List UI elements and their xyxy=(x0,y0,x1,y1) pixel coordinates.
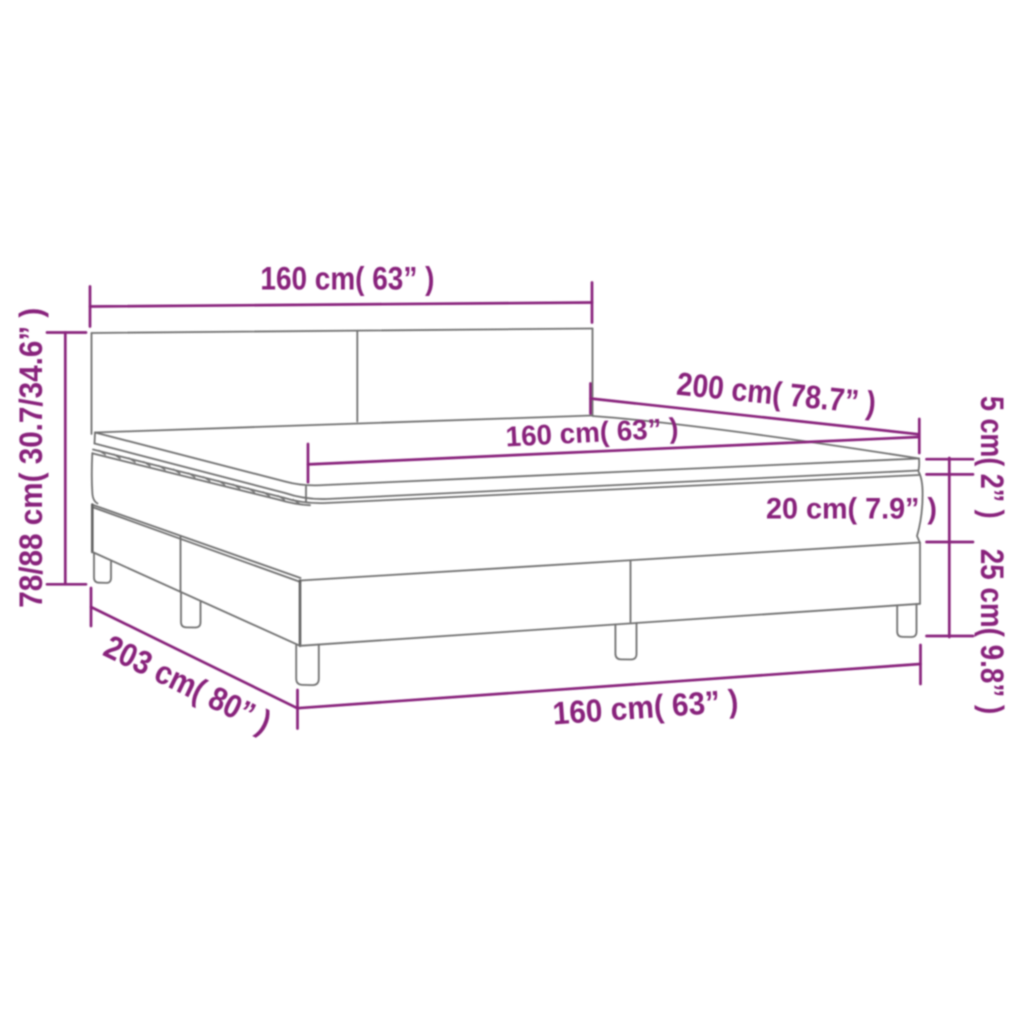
svg-text:25 cm( 9.8” ): 25 cm( 9.8” ) xyxy=(974,549,1010,715)
svg-text:160 cm( 63” ): 160 cm( 63” ) xyxy=(260,261,434,297)
svg-text:78/88 cm( 30.7/34.6” ): 78/88 cm( 30.7/34.6” ) xyxy=(13,308,49,608)
svg-text:200 cm( 78.7” ): 200 cm( 78.7” ) xyxy=(675,366,878,422)
svg-text:160 cm( 63” ): 160 cm( 63” ) xyxy=(505,412,679,453)
svg-text:160 cm( 63” ): 160 cm( 63” ) xyxy=(551,683,739,732)
svg-text:5 cm( 2” ): 5 cm( 2” ) xyxy=(974,396,1010,519)
svg-text:20 cm( 7.9” ): 20 cm( 7.9” ) xyxy=(766,493,937,526)
